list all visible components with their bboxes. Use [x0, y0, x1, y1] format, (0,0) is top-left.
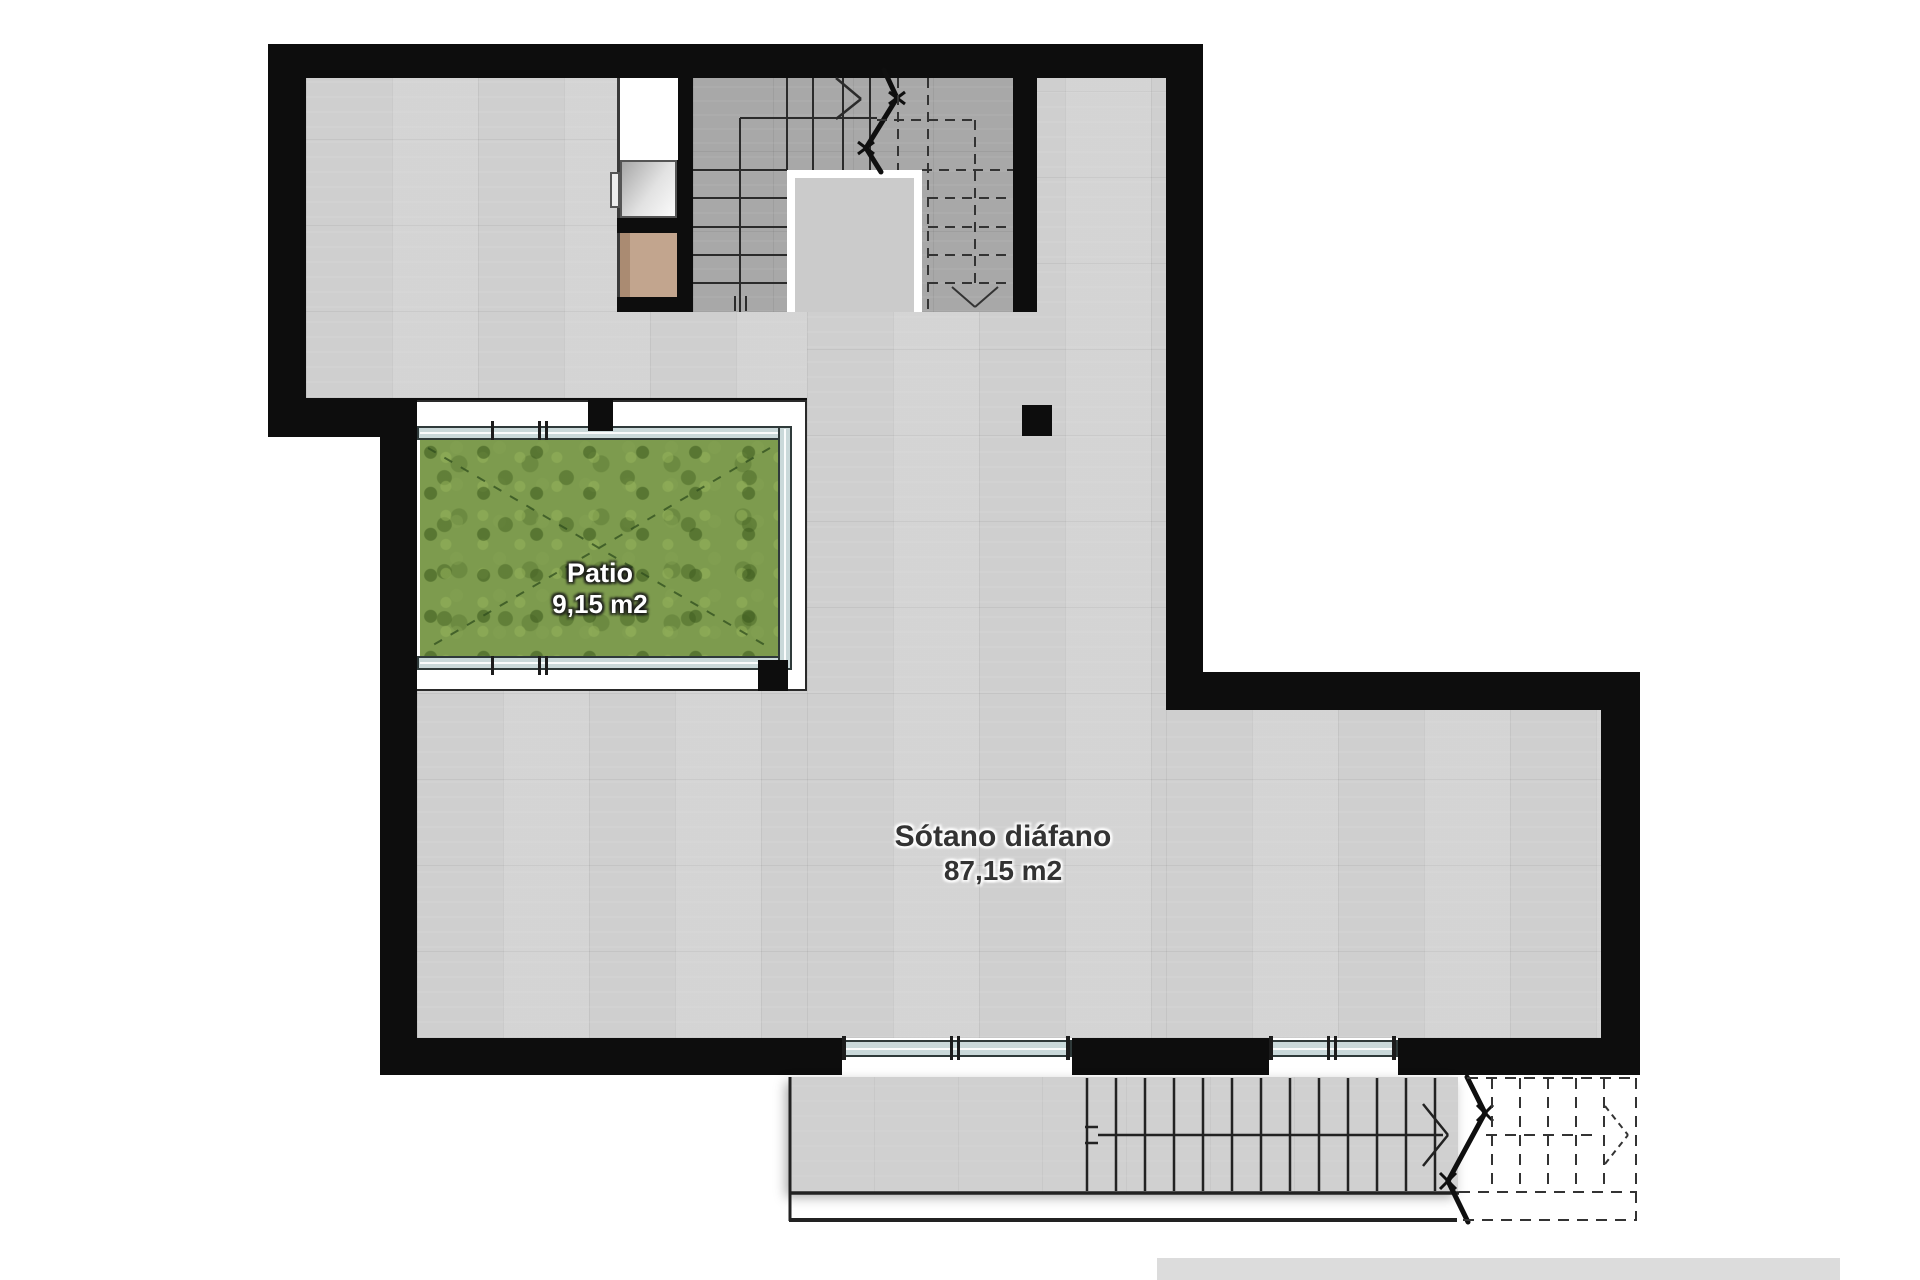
- terrace-break-line: [1440, 1077, 1493, 1222]
- stair-dashed-treads: [877, 78, 1013, 312]
- terrace-dashed-arrow-icon: [1605, 1106, 1628, 1164]
- plan-linework: [0, 0, 1920, 1280]
- terrace-dashed-stairs: [1459, 1078, 1637, 1221]
- grass-diagonal-marks: [428, 448, 770, 648]
- stair-direction-arrow-icon: [836, 78, 861, 119]
- terrace-stair-treads: [1085, 1078, 1443, 1191]
- stair-dashed-arrow-icon: [952, 287, 998, 307]
- stair-solid-treads: [693, 78, 877, 312]
- terrace-outline: [789, 1077, 1459, 1221]
- floor-plan-canvas: Patio 9,15 m2 Sótano diáfano 87,15 m2: [0, 0, 1920, 1280]
